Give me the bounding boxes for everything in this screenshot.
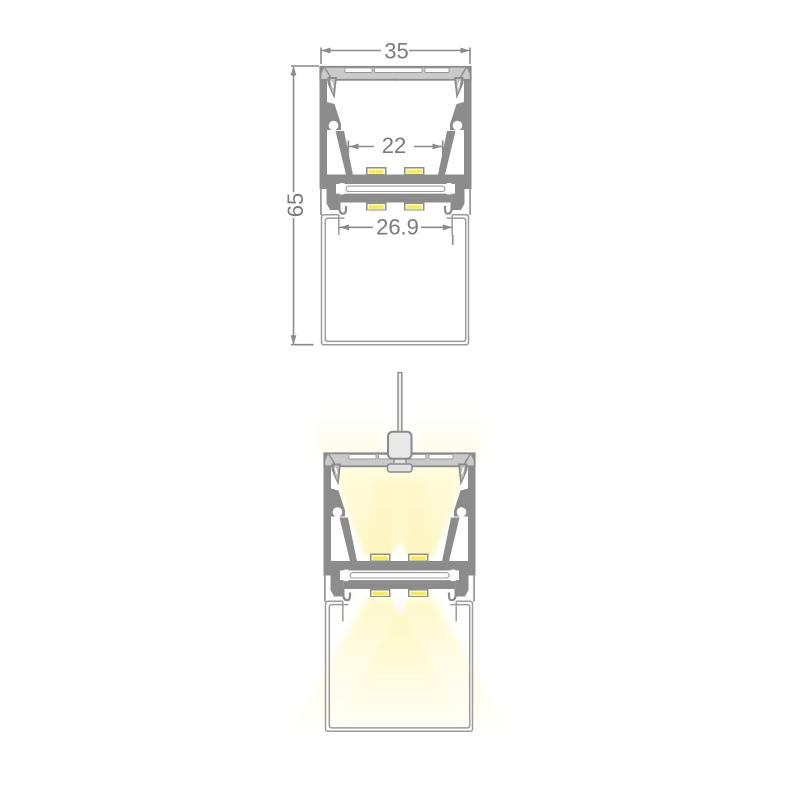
svg-text:65: 65 [283,193,308,217]
svg-text:26.9: 26.9 [376,215,419,240]
svg-text:35: 35 [384,39,408,64]
svg-text:22: 22 [382,133,406,158]
